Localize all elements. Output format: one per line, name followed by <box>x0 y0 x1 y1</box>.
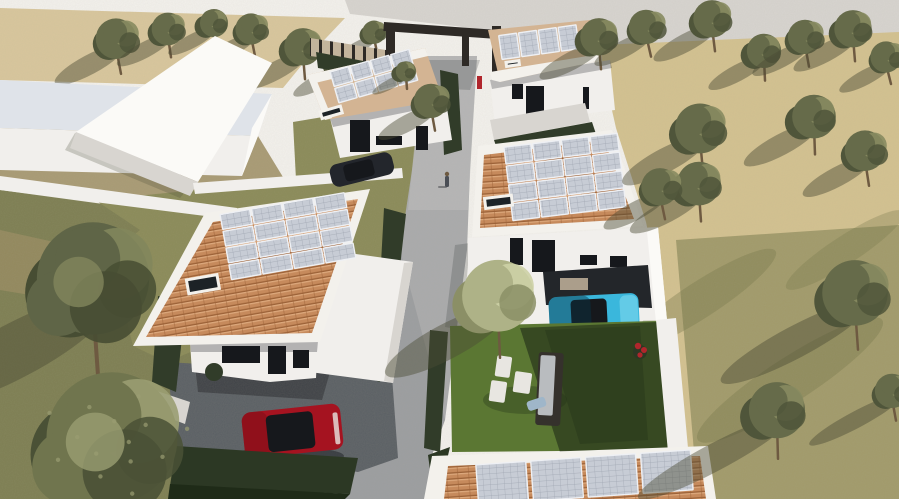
solar-panel <box>564 156 593 176</box>
entry-shrub <box>205 363 223 381</box>
solar-panel <box>568 193 597 213</box>
solar-panel <box>561 137 590 157</box>
solar-panel <box>531 458 584 499</box>
red-flowers <box>635 343 641 349</box>
aerial-render <box>0 0 899 499</box>
house-d-door <box>268 346 286 374</box>
garden-table <box>513 371 533 394</box>
solar-panel <box>476 461 529 499</box>
solar-panel <box>506 163 535 183</box>
outdoor-sofa <box>535 352 564 426</box>
house-a-door <box>350 120 370 152</box>
solar-panel <box>504 144 533 164</box>
carport-wood-door <box>560 278 588 290</box>
solar-panel <box>537 178 566 198</box>
red-flowers <box>637 352 642 357</box>
house-c-window <box>610 256 627 267</box>
solar-panel <box>535 159 564 179</box>
solar-panel <box>593 152 622 172</box>
solar-panel <box>538 28 559 54</box>
solar-panel <box>590 133 619 153</box>
solar-panel <box>499 33 520 59</box>
lounger <box>489 380 508 403</box>
red-flowers <box>641 347 647 353</box>
house-d-window <box>222 346 260 363</box>
solar-panel <box>511 201 540 221</box>
house-b-window <box>512 84 523 99</box>
pedestrian-body <box>445 176 449 187</box>
gate-post <box>462 30 469 66</box>
house-d-window <box>293 350 309 368</box>
solar-panel <box>533 140 562 160</box>
pedestrian-head <box>445 172 449 176</box>
house-a-window <box>416 126 428 150</box>
house-c-window <box>510 238 523 265</box>
red-figure <box>477 76 482 89</box>
solar-panel <box>566 175 595 195</box>
house-c-door <box>532 240 555 272</box>
solar-panel <box>519 30 540 56</box>
solar-panel <box>595 171 624 191</box>
lounger <box>495 355 513 378</box>
solar-panel <box>540 197 569 217</box>
solar-panel <box>597 190 626 210</box>
solar-panel <box>586 454 639 497</box>
house-c-window <box>580 255 597 265</box>
